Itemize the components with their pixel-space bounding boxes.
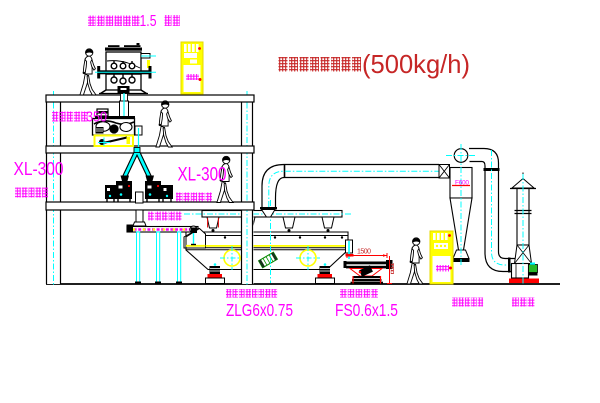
- svg-text:1500: 1500: [357, 249, 371, 256]
- svg-text:ZLG6x0.75: ZLG6x0.75: [226, 300, 293, 320]
- svg-text:350: 350: [86, 110, 107, 126]
- svg-text:F600: F600: [455, 180, 469, 187]
- svg-text:(500kg/h): (500kg/h): [362, 49, 470, 79]
- svg-text:XL-300: XL-300: [178, 165, 227, 186]
- svg-text:1.5: 1.5: [140, 13, 157, 30]
- svg-text:XL-300: XL-300: [14, 158, 64, 179]
- svg-text:FS0.6x1.5: FS0.6x1.5: [335, 300, 398, 320]
